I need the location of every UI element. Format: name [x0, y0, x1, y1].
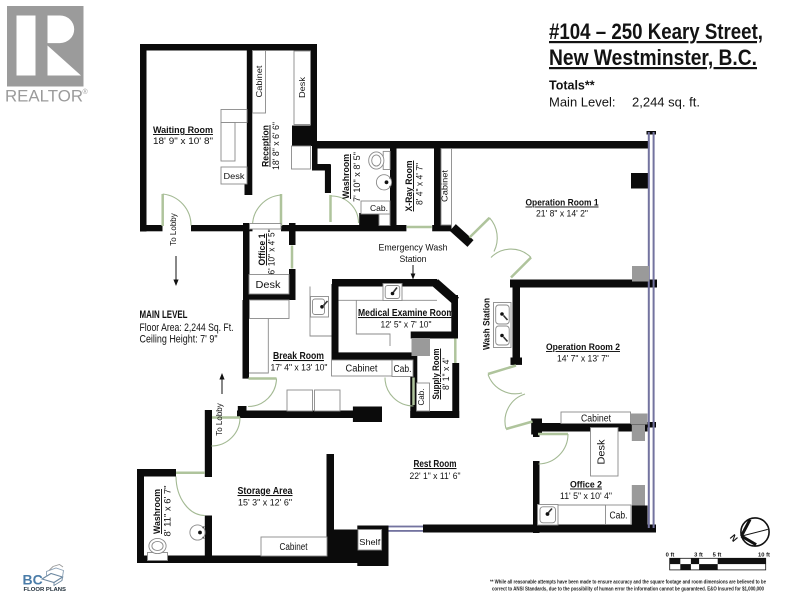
svg-text:Rest Room: Rest Room [414, 458, 457, 470]
svg-text:Operation Room 1: Operation Room 1 [526, 198, 600, 209]
svg-text:** While all reasonable attemp: ** While all reasonable attempts have be… [490, 580, 766, 586]
svg-text:X-Ray Room: X-Ray Room [404, 161, 415, 212]
svg-text:correct to ANSI Standards, due: correct to ANSI Standards, due to the po… [492, 587, 764, 593]
svg-text:Floor Area: 2,244 Sq. Ft.: Floor Area: 2,244 Sq. Ft. [140, 322, 234, 334]
svg-text:Desk: Desk [597, 438, 608, 464]
svg-text:#104 – 250 Keary Street,: #104 – 250 Keary Street, [549, 19, 763, 44]
svg-text:Break Room: Break Room [273, 350, 324, 362]
svg-text:5 ft: 5 ft [713, 553, 722, 559]
svg-text:Washroom: Washroom [341, 154, 352, 199]
svg-text:BC: BC [23, 572, 43, 588]
svg-text:Operation Room 2: Operation Room 2 [546, 342, 620, 353]
svg-text:Desk: Desk [224, 171, 246, 181]
svg-text:To Lobby: To Lobby [169, 213, 178, 245]
svg-text:0 ft: 0 ft [666, 553, 675, 559]
svg-text:To Lobby: To Lobby [215, 403, 224, 435]
svg-text:22' 1" x 11' 6": 22' 1" x 11' 6" [410, 471, 461, 481]
svg-text:11' 5" x 10' 4": 11' 5" x 10' 4" [560, 491, 612, 501]
svg-text:Office 2: Office 2 [570, 480, 602, 491]
svg-text:Station: Station [400, 254, 427, 265]
svg-text:12' 5" x 7' 10": 12' 5" x 7' 10" [381, 320, 432, 330]
svg-text:14' 7" x 13' 7": 14' 7" x 13' 7" [557, 354, 609, 364]
svg-text:MAIN LEVEL: MAIN LEVEL [140, 309, 188, 321]
svg-text:Cab.: Cab. [610, 511, 628, 522]
svg-text:Desk: Desk [297, 76, 307, 98]
svg-text:Storage Area: Storage Area [238, 485, 293, 497]
svg-text:Cabinet: Cabinet [280, 542, 308, 553]
svg-text:Cabinet: Cabinet [254, 65, 264, 98]
svg-text:Main Level:: Main Level: [549, 95, 615, 110]
svg-text:Cab.: Cab. [370, 203, 388, 213]
svg-text:8' 4" x 4' 7": 8' 4" x 4' 7" [415, 163, 425, 205]
svg-text:7' 10" x 8' 5": 7' 10" x 8' 5" [352, 152, 362, 202]
svg-text:Reception: Reception [261, 125, 272, 167]
svg-text:2,244 sq. ft.: 2,244 sq. ft. [632, 95, 700, 110]
svg-text:17' 4" x 13' 10": 17' 4" x 13' 10" [271, 363, 328, 373]
svg-text:Cabinet: Cabinet [346, 364, 378, 375]
svg-text:FLOOR PLANS: FLOOR PLANS [24, 587, 67, 593]
svg-text:Cabinet: Cabinet [581, 414, 611, 425]
svg-text:Ceiling Height: 7' 9": Ceiling Height: 7' 9" [140, 334, 218, 346]
svg-text:18' 9" x 10' 8": 18' 9" x 10' 8" [153, 136, 213, 146]
svg-text:8' 1" x 4': 8' 1" x 4' [441, 358, 451, 390]
svg-text:15' 3" x 12' 6": 15' 3" x 12' 6" [238, 498, 292, 508]
svg-text:REALTOR: REALTOR [5, 88, 83, 106]
svg-text:21' 8" x 14' 2": 21' 8" x 14' 2" [536, 209, 588, 219]
svg-text:3 ft: 3 ft [694, 553, 703, 559]
svg-text:10 ft: 10 ft [758, 553, 770, 559]
svg-text:Wash Station: Wash Station [482, 298, 493, 350]
svg-text:Cabinet: Cabinet [440, 169, 450, 202]
svg-text:18' 8" x 6' 6": 18' 8" x 6' 6" [271, 122, 281, 170]
svg-text:Cab.: Cab. [394, 364, 412, 375]
svg-text:Emergency Wash: Emergency Wash [379, 243, 448, 254]
svg-text:Cab.: Cab. [416, 389, 426, 406]
svg-text:New Westminster, B.C.: New Westminster, B.C. [549, 45, 757, 70]
svg-text:Shelf: Shelf [359, 537, 381, 547]
svg-text:6' 10" x 4' 5": 6' 10" x 4' 5" [267, 230, 277, 275]
svg-text:®: ® [83, 88, 89, 96]
svg-text:Medical Examine Room: Medical Examine Room [358, 307, 454, 319]
svg-text:Waiting Room: Waiting Room [153, 125, 213, 136]
svg-text:Totals**: Totals** [549, 79, 595, 93]
svg-text:8' 11" x 6' 7": 8' 11" x 6' 7" [163, 486, 173, 537]
svg-text:Washroom: Washroom [152, 489, 163, 534]
svg-text:Desk: Desk [256, 280, 282, 291]
